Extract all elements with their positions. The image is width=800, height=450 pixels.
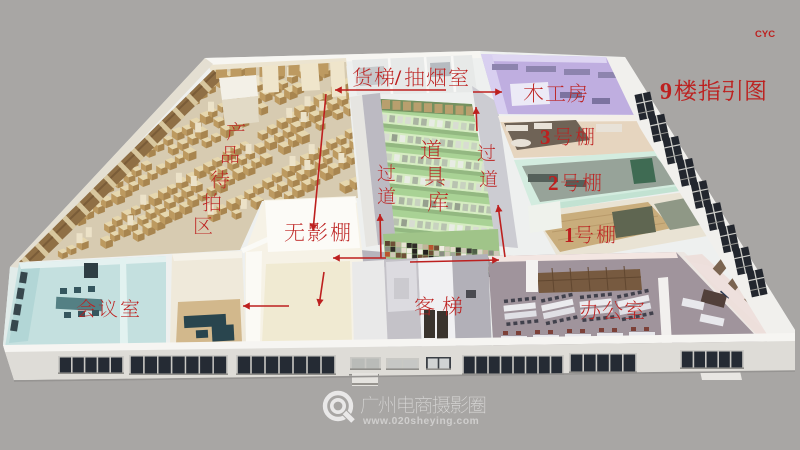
svg-text:9: 9 bbox=[660, 79, 672, 105]
svg-text:CYC: CYC bbox=[755, 29, 775, 40]
svg-text:2: 2 bbox=[548, 171, 559, 195]
svg-text:3: 3 bbox=[540, 125, 551, 149]
svg-text:/: / bbox=[394, 65, 402, 90]
svg-text:www.020sheying.com: www.020sheying.com bbox=[362, 416, 479, 427]
svg-text:1: 1 bbox=[564, 223, 575, 247]
